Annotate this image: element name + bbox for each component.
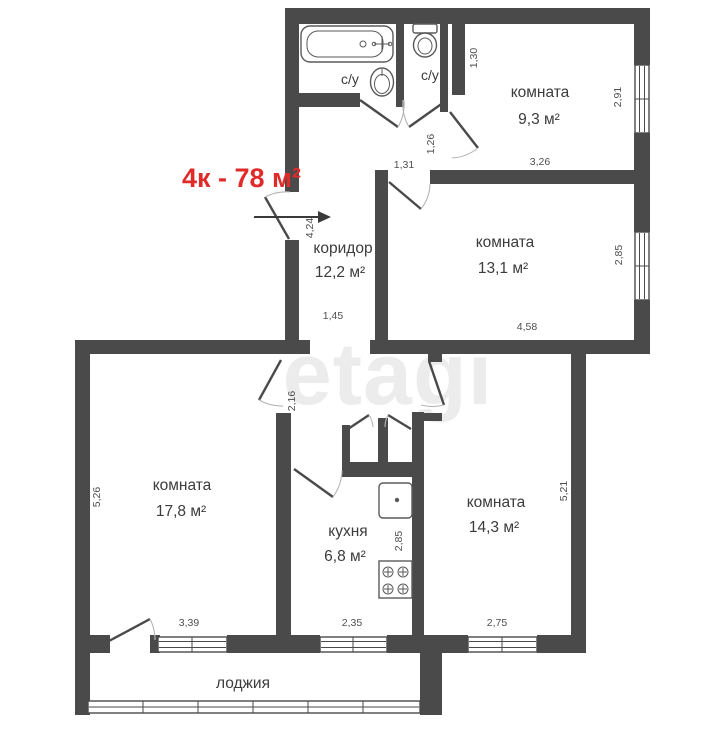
floor-plan: etagi [0, 0, 725, 725]
bathroom-label: с/у [341, 71, 359, 87]
kitchen-door [294, 469, 342, 497]
wc-door [403, 100, 447, 127]
wall [571, 354, 586, 653]
dim-room-left-h: 5,26 [91, 487, 103, 508]
floor-plan-svg: etagi [0, 0, 725, 725]
wall [75, 340, 90, 715]
dim-room-top-w: 3,26 [530, 156, 551, 168]
corridor-area: 12,2 м² [315, 264, 365, 281]
dim-room-right-w: 4,58 [517, 321, 538, 333]
dim-room-left-w: 3,39 [179, 617, 200, 629]
wall [428, 340, 442, 362]
wall [396, 8, 404, 107]
wall [285, 240, 299, 354]
room-bottom-name: комната [467, 494, 526, 511]
room-left-name: комната [153, 477, 212, 494]
wall [298, 93, 360, 107]
room-right-name: комната [476, 234, 535, 251]
dim-kitchen-h: 2,85 [393, 531, 405, 552]
plan-title: 4к - 78 м² [182, 163, 301, 193]
wall [420, 640, 442, 715]
wall [283, 340, 310, 354]
wall [90, 635, 110, 653]
window-kitchen [320, 637, 387, 652]
wall [440, 20, 448, 112]
kitchen-name: кухня [328, 523, 367, 540]
dim-room-bottom-h: 5,21 [558, 481, 570, 502]
room-top-area: 9,3 м² [518, 111, 560, 128]
kitchen-area: 6,8 м² [324, 548, 366, 565]
room-left-area: 17,8 м² [156, 503, 206, 520]
loggia-name: лоджия [216, 675, 270, 692]
wall [370, 340, 650, 354]
sink-icon [371, 68, 394, 96]
dim-niche-h: 1,30 [468, 48, 480, 69]
dim-kitchen-w: 2,35 [342, 617, 363, 629]
bathtub-icon [301, 26, 393, 62]
wall [276, 413, 291, 640]
corridor-name: коридор [313, 240, 372, 257]
dim-room-top-h: 2,91 [612, 87, 624, 108]
room-left-door [259, 360, 283, 406]
wall [75, 340, 283, 354]
wall [452, 22, 465, 95]
dim-corridor-h: 4,24 [304, 218, 316, 239]
dim-nook-h: 1,26 [425, 134, 437, 155]
dim-room-right-h: 2,85 [613, 245, 625, 266]
window-room-bottom [468, 637, 537, 652]
wc-label: с/у [421, 67, 439, 83]
wall [430, 170, 650, 184]
balcony-door [109, 619, 155, 641]
entrance-door [265, 192, 290, 239]
wall [378, 418, 388, 465]
wall [285, 8, 650, 24]
toilet-icon [413, 24, 437, 57]
dim-room-bottom-w: 2,75 [487, 617, 508, 629]
room-right-area: 13,1 м² [478, 260, 528, 277]
wall [227, 635, 320, 653]
entrance-arrow [254, 211, 331, 223]
room-top-door [450, 112, 478, 158]
window-room-left [158, 637, 227, 652]
dim-corridor-w: 1,45 [323, 310, 344, 322]
dim-nook-w: 1,31 [394, 159, 415, 171]
dim-hall-h: 2,16 [286, 391, 298, 412]
wall [412, 412, 424, 640]
wall [342, 425, 350, 465]
stove-icon [379, 561, 412, 598]
room-right-door [389, 182, 430, 209]
room-top-name: комната [511, 84, 570, 101]
window-room-right [635, 232, 649, 300]
wall [375, 170, 388, 354]
window-loggia [88, 701, 420, 713]
window-room-top [635, 65, 649, 133]
room-bottom-area: 14,3 м² [469, 519, 519, 536]
kitchen-sink-icon [379, 483, 412, 518]
wall [634, 8, 650, 65]
wall [424, 413, 442, 421]
